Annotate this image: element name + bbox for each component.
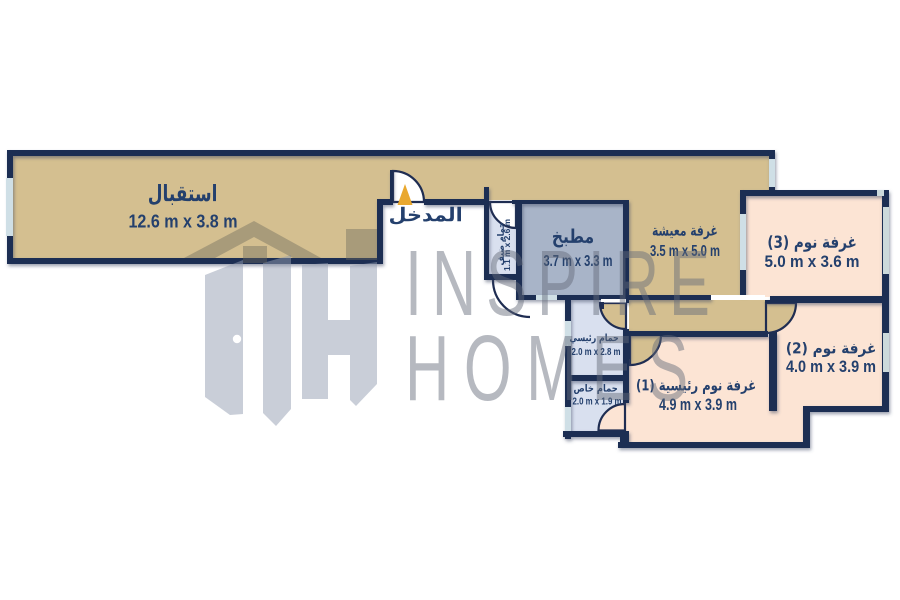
- svg-text:4.0 m x 3.9 m: 4.0 m x 3.9 m: [786, 357, 876, 376]
- svg-text:12.6 m x 3.8 m: 12.6 m x 3.8 m: [129, 211, 238, 232]
- svg-text:5.0 m x 3.6 m: 5.0 m x 3.6 m: [765, 252, 860, 271]
